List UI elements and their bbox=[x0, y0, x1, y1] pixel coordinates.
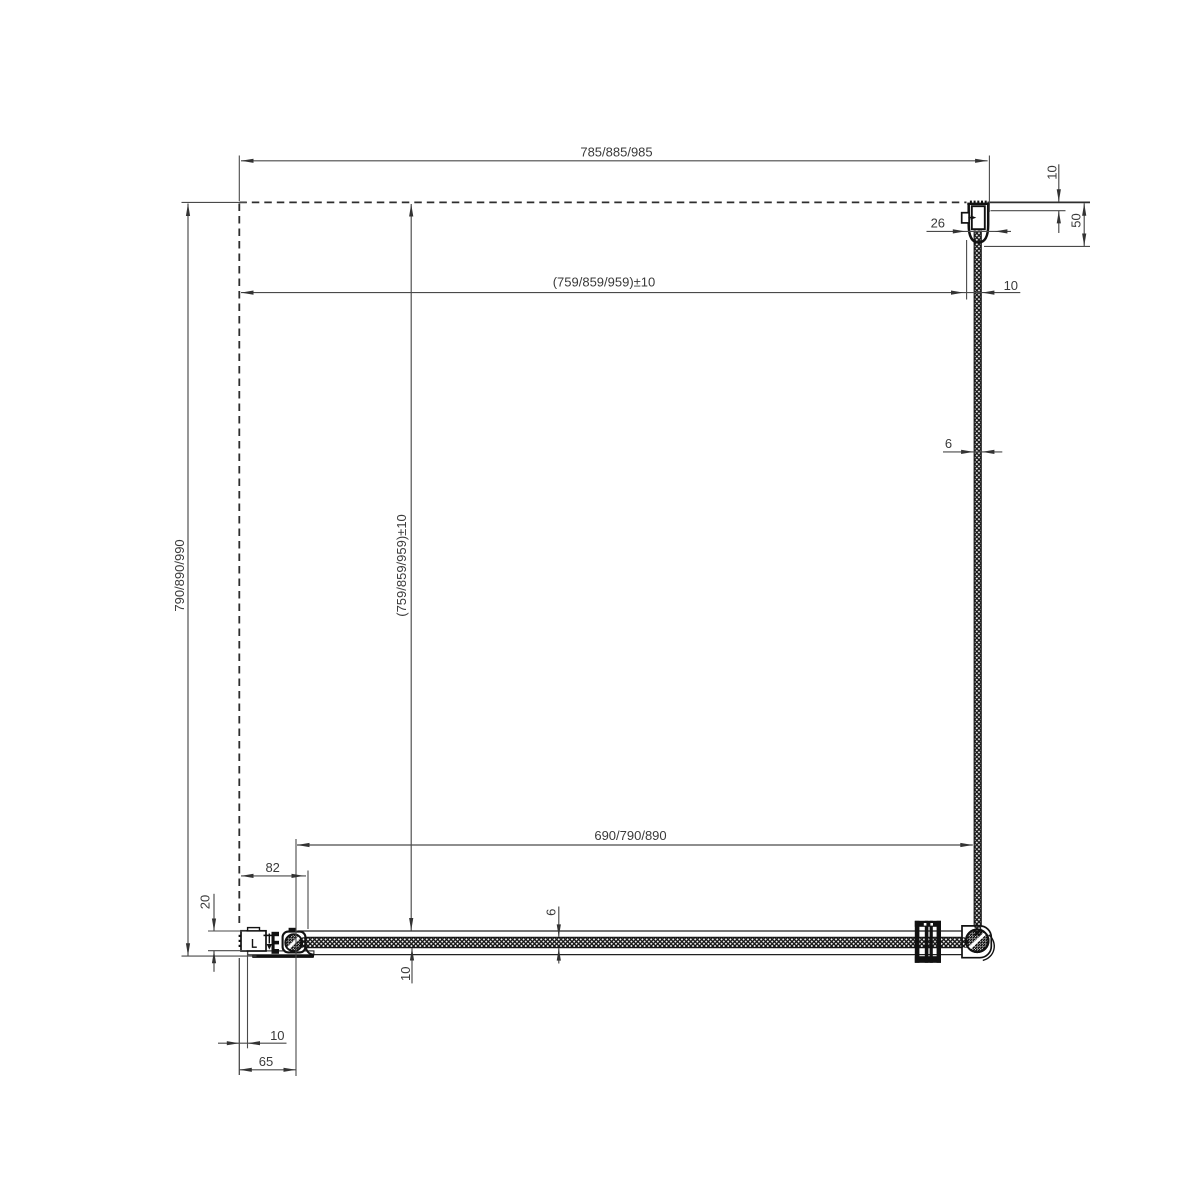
svg-text:(759/859/959)±10: (759/859/959)±10 bbox=[394, 514, 409, 617]
svg-text:82: 82 bbox=[265, 860, 279, 875]
svg-text:65: 65 bbox=[259, 1054, 273, 1069]
svg-text:785/885/985: 785/885/985 bbox=[580, 145, 652, 160]
svg-text:10: 10 bbox=[1004, 278, 1018, 293]
svg-text:690/790/890: 690/790/890 bbox=[594, 828, 666, 843]
svg-text:6: 6 bbox=[544, 909, 559, 916]
svg-text:10: 10 bbox=[1045, 165, 1060, 179]
svg-text:50: 50 bbox=[1069, 213, 1084, 227]
svg-text:10: 10 bbox=[270, 1028, 284, 1043]
svg-text:6: 6 bbox=[945, 436, 952, 451]
svg-text:20: 20 bbox=[198, 895, 213, 909]
svg-text:10: 10 bbox=[398, 967, 413, 981]
svg-text:26: 26 bbox=[931, 216, 945, 231]
svg-text:790/890/990: 790/890/990 bbox=[172, 539, 187, 611]
svg-text:(759/859/959)±10: (759/859/959)±10 bbox=[553, 275, 656, 290]
